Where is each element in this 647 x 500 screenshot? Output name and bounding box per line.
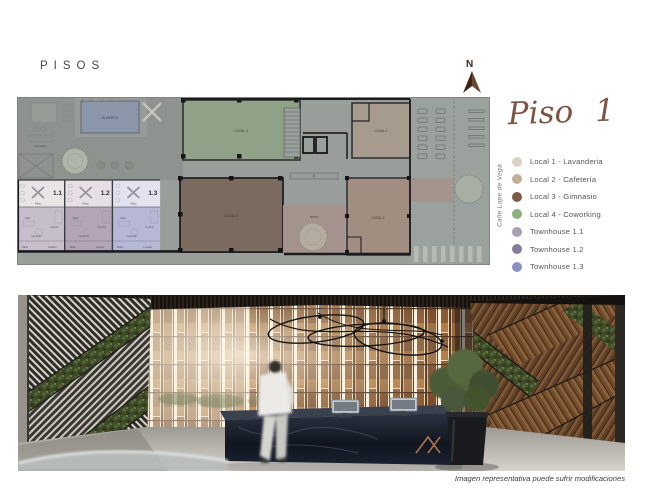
svg-text:Sala: Sala	[73, 216, 79, 220]
swatch-th13	[512, 262, 522, 272]
patio-label-1: Patio	[35, 202, 42, 206]
north-arrow-icon	[462, 71, 482, 94]
svg-text:Baño: Baño	[22, 245, 29, 249]
local-2-cafeteria: LOCAL 2	[345, 176, 411, 255]
svg-text:Lavado: Lavado	[48, 245, 57, 249]
legend-item: Local 3 - Gimnasio	[512, 188, 603, 206]
legend-item: Local 4 - Coworking	[512, 206, 603, 224]
floor-heading: Piso 1	[507, 92, 639, 145]
swatch-local1	[512, 157, 522, 167]
th2-number: 1.2	[101, 190, 110, 197]
floor-plan: ALBERCA LOUNGE	[17, 97, 490, 265]
legend-item: Townhouse 1.3	[512, 258, 603, 276]
legend-item: Local 2 - Cafetería	[512, 171, 603, 189]
th1-number: 1.1	[53, 190, 62, 197]
photo-caption: Imagen representativa puede sufrir modif…	[325, 474, 625, 483]
swatch-local3	[512, 192, 522, 202]
svg-text:Cocina: Cocina	[145, 225, 154, 229]
street-tree	[455, 175, 483, 203]
swatch-local4	[512, 209, 522, 219]
svg-text:Lavado: Lavado	[143, 245, 152, 249]
th3-number: 1.3	[148, 190, 157, 197]
north-label: N	[466, 59, 474, 70]
svg-text:Baño: Baño	[117, 245, 124, 249]
patio-label-3: Patio	[130, 202, 137, 206]
lounge-label: LOUNGE	[34, 144, 47, 148]
svg-text:Lavado: Lavado	[96, 245, 105, 249]
patio-large-label: PATIO	[310, 215, 319, 219]
local-4-coworking: LOCAL 4	[181, 98, 300, 160]
legend-item: Townhouse 1.1	[512, 223, 603, 241]
brochure-page: PISOS N ALBERCA LOUNGE	[0, 0, 647, 500]
swatch-th11	[512, 227, 522, 237]
svg-text:Sala: Sala	[120, 216, 126, 220]
local2-label: LOCAL 2	[372, 216, 385, 220]
svg-text:Cocina: Cocina	[98, 225, 107, 229]
page-title: PISOS	[40, 60, 105, 72]
svg-text:Baño: Baño	[70, 245, 77, 249]
legend: Local 1 - Lavanderia Local 2 - Cafetería…	[512, 153, 603, 276]
legend-item: Local 1 - Lavanderia	[512, 153, 603, 171]
local3-label: LOCAL 3	[224, 214, 238, 218]
pool-area: ALBERCA	[63, 97, 147, 137]
local4-label: LOCAL 4	[234, 129, 248, 133]
local-3-gimnasio: LOCAL 3	[178, 176, 283, 253]
svg-text:Sala: Sala	[25, 216, 31, 220]
legend-item: Townhouse 1.2	[512, 241, 603, 259]
street-label: Calle Lope de Vega	[497, 148, 504, 244]
alberca-label: ALBERCA	[102, 116, 119, 120]
patio-label-2: Patio	[83, 202, 90, 206]
local-1-lavanderia: LOCAL 1	[352, 103, 410, 158]
svg-text:Cocina: Cocina	[50, 225, 59, 229]
local1-label: LOCAL 1	[375, 129, 388, 133]
swatch-local2	[512, 174, 522, 184]
swatch-th12	[512, 244, 522, 254]
lobby-photo	[18, 295, 625, 471]
